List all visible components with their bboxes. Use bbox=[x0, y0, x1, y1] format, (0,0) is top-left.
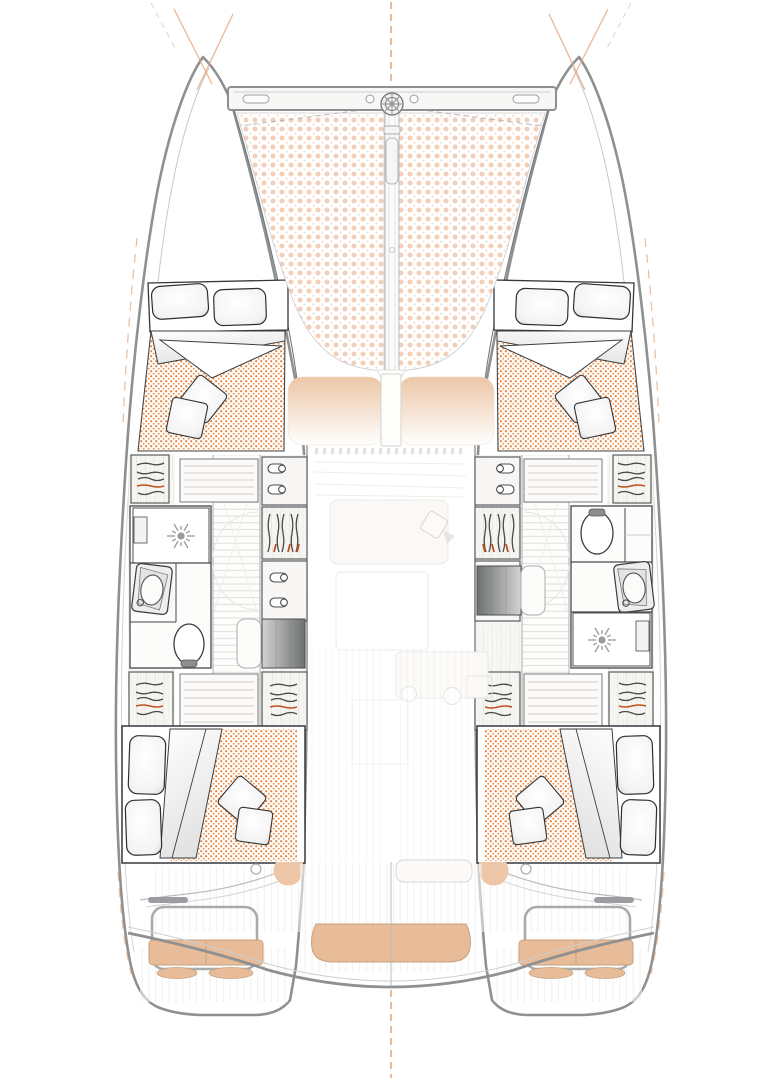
ghost-cockpit-table bbox=[396, 860, 472, 882]
companionway-steps-starboard bbox=[477, 566, 545, 615]
beam-hatch bbox=[243, 95, 269, 103]
bathroom-port bbox=[130, 506, 211, 668]
ghost-table bbox=[336, 572, 428, 650]
coachroof-window-pad bbox=[399, 377, 494, 445]
beam-hatch bbox=[513, 95, 539, 103]
bathroom-starboard bbox=[571, 506, 655, 668]
toilet bbox=[174, 624, 204, 664]
companionway-steps-port bbox=[237, 619, 305, 668]
catamaran-floorplan bbox=[0, 0, 764, 1080]
saloon-ghost bbox=[288, 370, 494, 862]
bowsprit bbox=[384, 110, 400, 372]
anchor-windlass bbox=[381, 93, 403, 115]
coachroof-window-pad bbox=[288, 377, 383, 445]
toilet bbox=[581, 512, 613, 554]
mast-post bbox=[381, 374, 401, 446]
catamaran-floorplan-page bbox=[0, 0, 764, 1080]
